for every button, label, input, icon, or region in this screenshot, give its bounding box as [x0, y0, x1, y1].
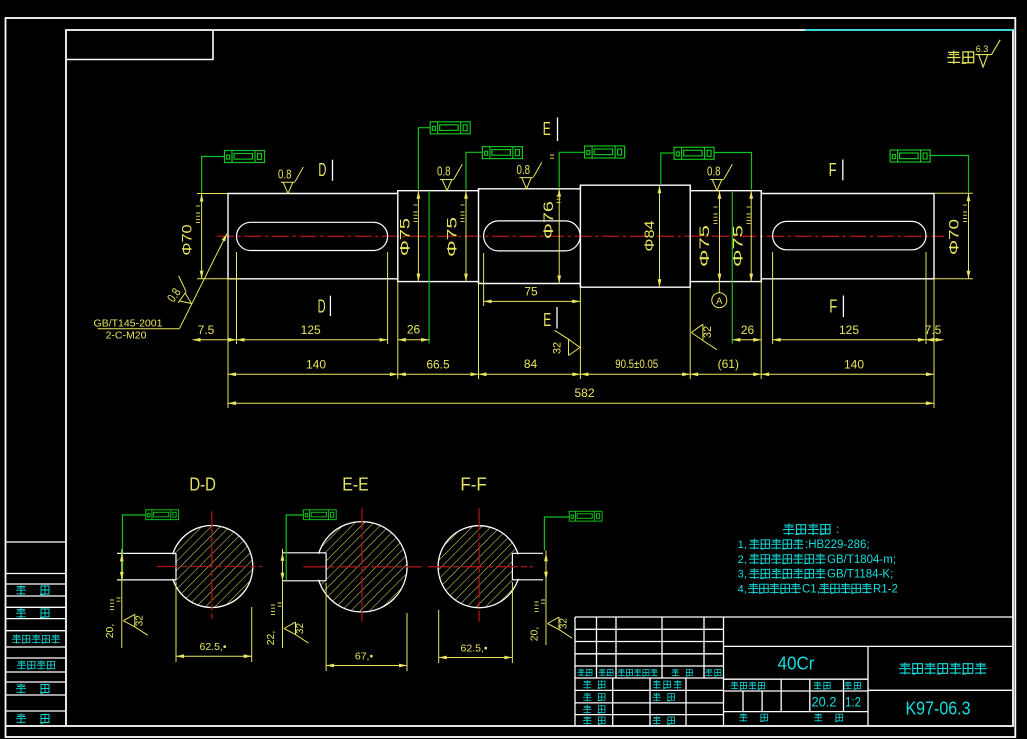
svg-text:20,: 20, [104, 624, 116, 639]
svg-text:90.5±0.05: 90.5±0.05 [615, 357, 658, 371]
svg-text:6.3: 6.3 [976, 44, 989, 54]
svg-text:GB/T1184-K;: GB/T1184-K; [827, 569, 893, 581]
svg-text:E: E [543, 118, 551, 139]
svg-text:Φ75: Φ75 [696, 225, 712, 267]
svg-text:F: F [829, 295, 837, 316]
svg-text:F-F: F-F [460, 474, 487, 495]
svg-text:26: 26 [741, 323, 755, 337]
svg-text:140: 140 [844, 358, 864, 372]
svg-text:20,: 20, [529, 627, 541, 642]
svg-text:26: 26 [407, 322, 421, 336]
svg-text:84: 84 [524, 357, 538, 371]
svg-text::: : [836, 524, 839, 536]
svg-text:E-E: E-E [342, 474, 369, 495]
svg-text:R1-2: R1-2 [873, 583, 898, 595]
svg-text:D: D [318, 296, 326, 317]
svg-text:GB/T145-2001: GB/T145-2001 [94, 318, 163, 330]
svg-text:Φ70: Φ70 [946, 219, 962, 255]
svg-text:75: 75 [524, 285, 538, 299]
svg-text:22,: 22, [265, 631, 277, 646]
svg-text:GB/T1804-m;: GB/T1804-m; [827, 554, 896, 566]
svg-text:C1,: C1, [802, 583, 820, 595]
svg-text:Φ84: Φ84 [641, 220, 657, 251]
svg-text:D: D [318, 159, 326, 180]
svg-text:4,: 4, [738, 583, 747, 595]
svg-text:62.5,•: 62.5,• [460, 643, 487, 655]
svg-text:D-D: D-D [189, 474, 216, 495]
svg-text:2-C-M20: 2-C-M20 [106, 330, 147, 342]
svg-text:582: 582 [574, 386, 594, 400]
svg-text::HB229-286;: :HB229-286; [805, 539, 870, 551]
svg-text:A: A [716, 296, 723, 307]
svg-text:66.5: 66.5 [426, 358, 450, 372]
svg-text:Φ70: Φ70 [179, 224, 195, 255]
svg-text:1,: 1, [738, 539, 747, 551]
svg-text:K97-06.3: K97-06.3 [906, 698, 971, 719]
svg-text:Φ75: Φ75 [444, 217, 460, 257]
svg-text:40Cr: 40Cr [778, 653, 815, 674]
svg-text:3,: 3, [738, 569, 747, 581]
svg-text:(61): (61) [718, 357, 739, 371]
svg-text:67,•: 67,• [355, 651, 374, 663]
svg-text:Φ75: Φ75 [397, 218, 413, 256]
svg-text:7.5: 7.5 [198, 323, 215, 337]
svg-text:Φ76: Φ76 [540, 201, 556, 239]
svg-text:E: E [543, 309, 551, 330]
svg-text:F: F [829, 159, 837, 180]
svg-text:125: 125 [839, 323, 859, 337]
svg-text:2,: 2, [738, 554, 747, 566]
svg-text:1:2: 1:2 [845, 694, 861, 710]
svg-text:20.2: 20.2 [812, 694, 837, 710]
svg-text:140: 140 [306, 358, 326, 372]
svg-text:125: 125 [301, 323, 321, 337]
svg-text:62.5,•: 62.5,• [199, 641, 226, 653]
svg-text:7.5: 7.5 [925, 323, 942, 337]
